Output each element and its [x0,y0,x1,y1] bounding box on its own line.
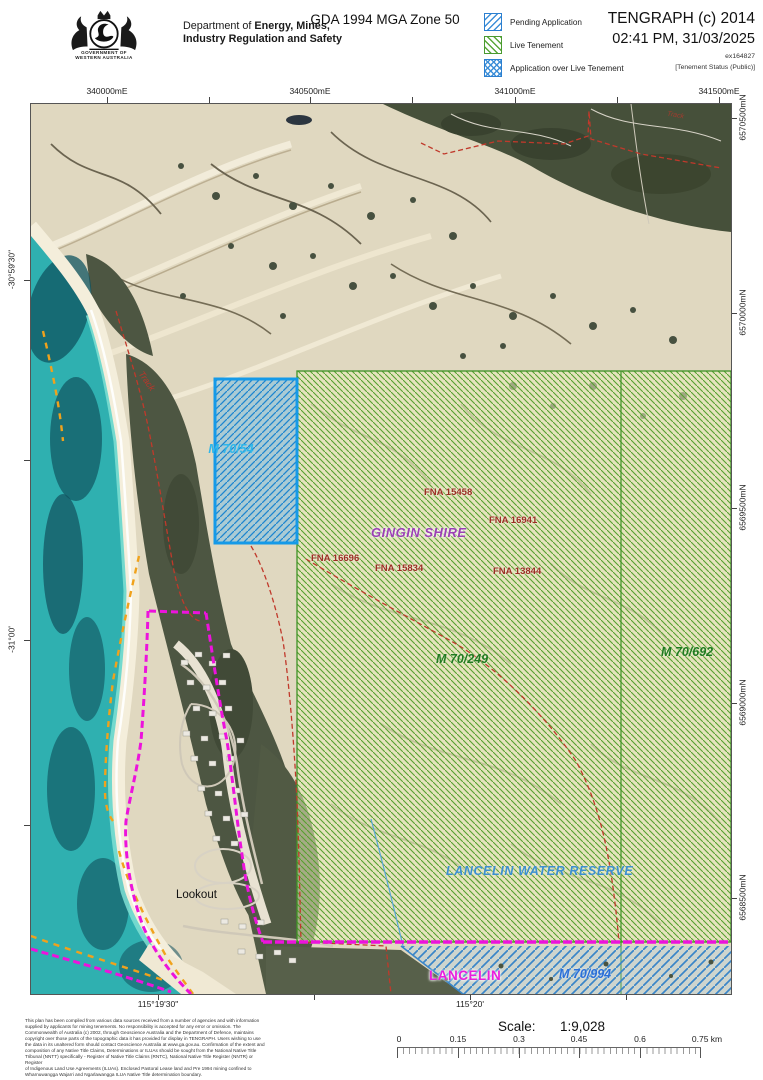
tenement-status-note: [Tenement Status (Public)] [515,64,755,71]
easting-label: 340500mE [275,86,345,97]
scalebar-major-tick [458,1048,459,1058]
scalebar-ruler [397,1047,701,1060]
tengraph-plan-page: GOVERNMENT OF WESTERN AUSTRALIA Departme… [0,0,763,1080]
department-prefix: Department of [183,20,254,32]
disclaimer-text: This plan has been compiled from various… [25,1018,265,1078]
easting-label: 340000mE [72,86,142,97]
scalebar-major-tick [700,1048,701,1058]
live-tenement-area [297,371,731,994]
scalebar-major-tick [579,1048,580,1058]
easting-label: 341000mE [480,86,550,97]
department-bold-line2: Industry Regulation and Safety [183,33,342,45]
live-tenement-swatch-icon [484,36,502,54]
map-canvas: M 70/54 FNA 15458 FNA 16941 GINGIN SHIRE… [30,103,732,995]
scale-label: Scale: [498,1019,536,1034]
pending-application-m70-54 [215,379,297,543]
scale-value: 1:9,028 [560,1019,605,1034]
northing-label: 6569000mN [738,668,749,738]
reference-number: ex164827 [515,53,755,60]
scalebar-label: 0.15 [436,1034,480,1044]
application-over-live-swatch-icon [484,59,502,77]
scalebar-minor-ticks [397,1048,701,1054]
scalebar-major-tick [640,1048,641,1058]
latitude-label: -30°59'30" [7,235,18,305]
projection-title: GDA 1994 MGA Zone 50 [270,12,500,27]
scalebar-label: 0.3 [497,1034,541,1044]
northing-label: 6568500mN [738,863,749,933]
aerial-photo-layer [31,104,731,994]
scalebar-label: 0.6 [618,1034,662,1044]
scalebar-label: 0.45 [557,1034,601,1044]
northing-label: 6569500mN [738,473,749,543]
gov-caption: GOVERNMENT OF WESTERN AUSTRALIA [36,50,172,60]
pending-application-swatch-icon [484,13,502,31]
scalebar-label: 0 [377,1034,421,1044]
longitude-label: 115°19'30" [123,999,193,1010]
app-title: TENGRAPH (c) 2014 [515,10,755,28]
northing-label: 6570000mN [738,278,749,348]
scalebar-major-tick [397,1048,398,1058]
latitude-label: -31°00' [7,605,18,675]
scalebar-label: 0.75 km [679,1034,735,1044]
scalebar-major-tick [519,1048,520,1058]
timestamp: 02:41 PM, 31/03/2025 [515,31,755,47]
northing-label: 6570500mN [738,83,749,153]
scalebar-labels: 0 0.15 0.3 0.45 0.6 0.75 km [397,1034,707,1045]
longitude-label: 115°20' [435,999,505,1010]
wa-government-crest-logo [58,10,150,52]
